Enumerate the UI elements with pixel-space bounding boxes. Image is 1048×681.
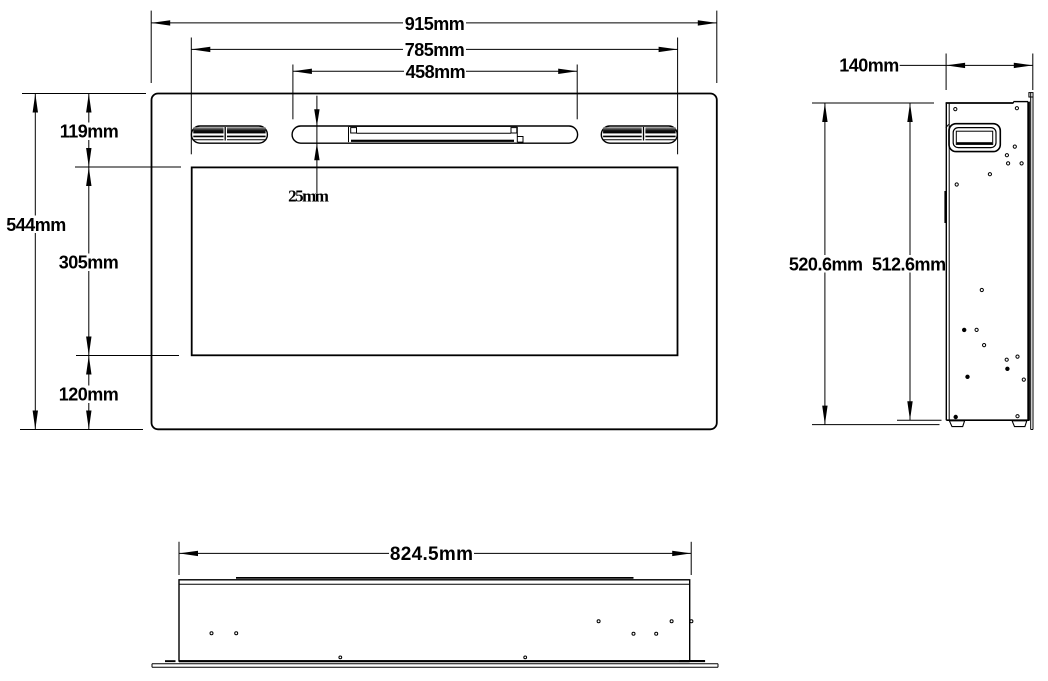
- svg-text:119mm: 119mm: [60, 122, 119, 142]
- svg-text:120mm: 120mm: [59, 385, 119, 405]
- svg-text:305mm: 305mm: [59, 253, 119, 273]
- svg-text:824.5mm: 824.5mm: [390, 544, 473, 565]
- svg-text:915mm: 915mm: [405, 14, 465, 34]
- svg-text:458mm: 458mm: [406, 62, 466, 82]
- svg-text:140mm: 140mm: [839, 56, 899, 76]
- svg-text:512.6mm: 512.6mm: [872, 255, 946, 275]
- svg-text:25mm: 25mm: [288, 187, 329, 206]
- svg-text:544mm: 544mm: [6, 215, 66, 235]
- svg-text:520.6mm: 520.6mm: [789, 255, 863, 275]
- svg-text:785mm: 785mm: [405, 40, 465, 60]
